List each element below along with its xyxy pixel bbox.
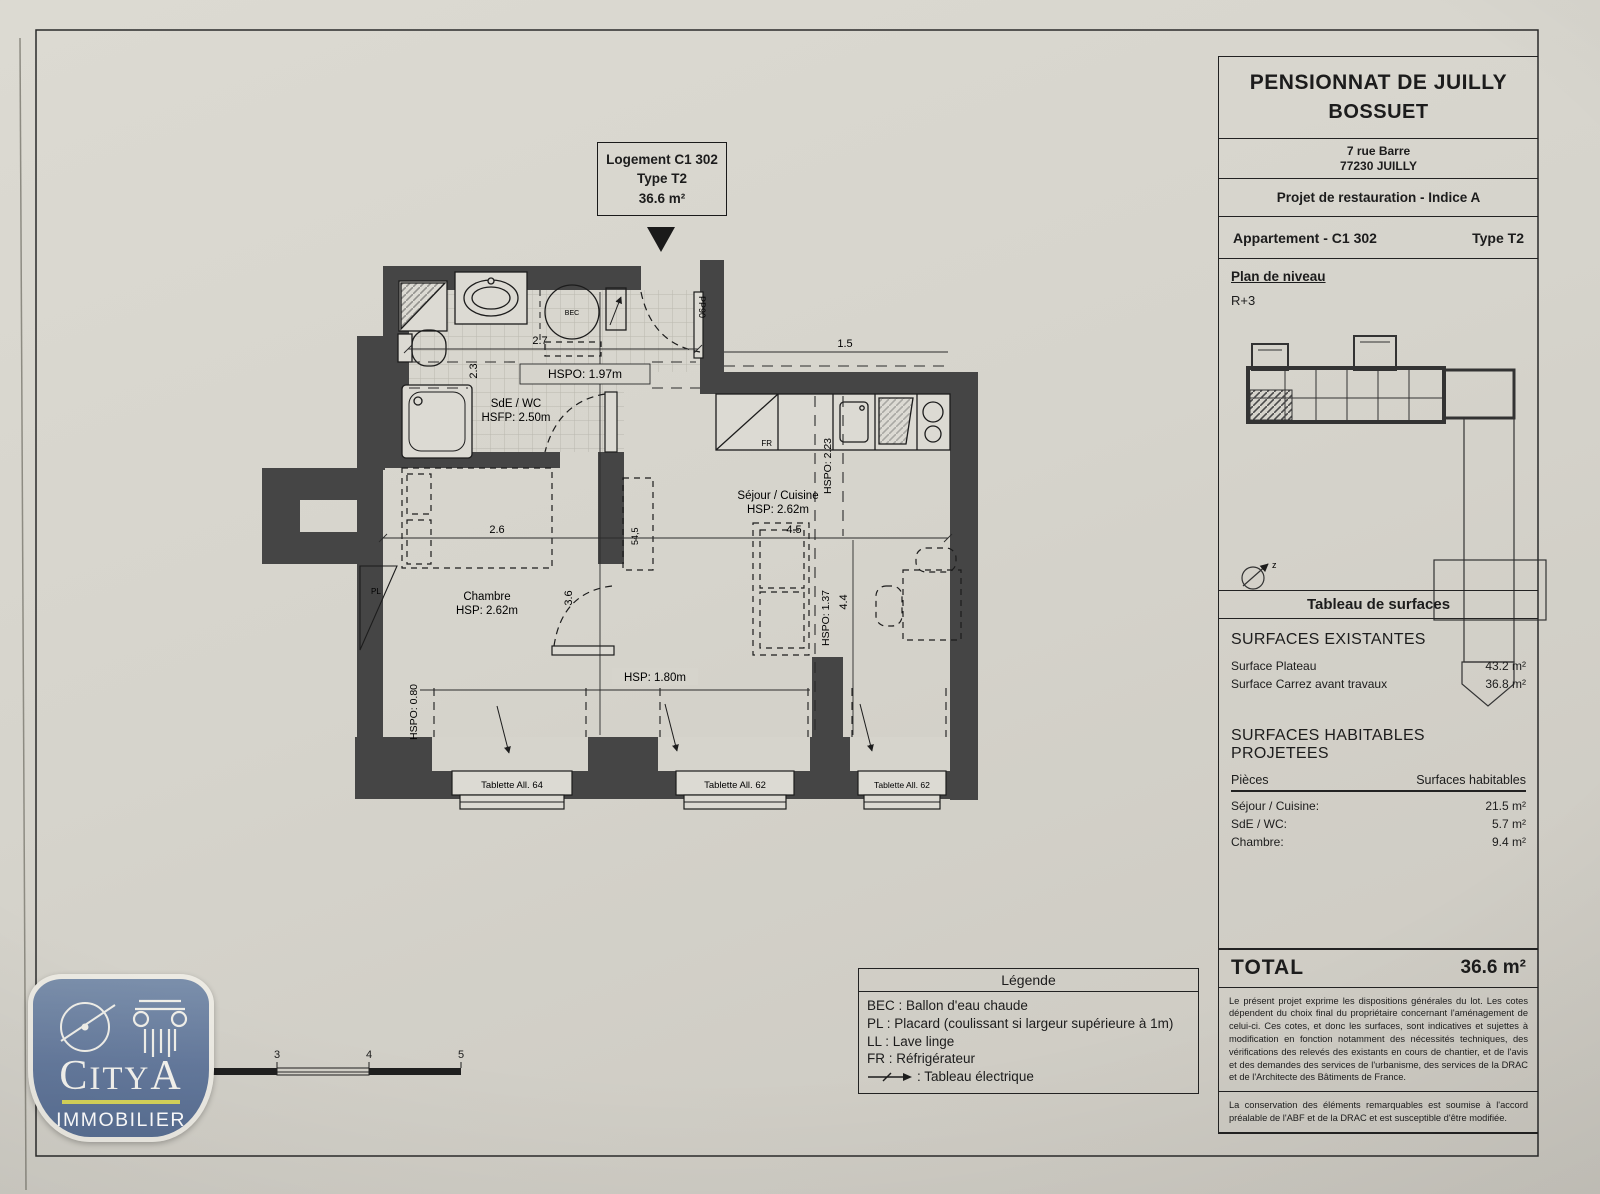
surfaces-table: SURFACES EXISTANTES Surface Plateau 43.2… <box>1219 619 1538 949</box>
note-1: Le présent projet exprime les dispositio… <box>1219 988 1538 1093</box>
fridge-label: FR <box>761 439 772 448</box>
legend-title: Légende <box>859 969 1198 992</box>
unit-type: Type T2 <box>598 169 726 189</box>
projected-surfaces-header: SURFACES HABITABLES PROJETEES <box>1231 727 1526 763</box>
pillow <box>407 474 431 514</box>
window-sill-label: Tablette All. 64 <box>481 780 543 791</box>
unit-area: 36.6 m² <box>598 189 726 209</box>
legend-box: Légende BEC : Ballon d'eau chaude PL : P… <box>858 968 1199 1094</box>
svg-text:3: 3 <box>274 1049 280 1061</box>
svg-text:4: 4 <box>366 1049 372 1061</box>
project-title: PENSIONNAT DE JUILLY BOSSUET <box>1219 57 1538 139</box>
logo-icons <box>41 979 201 1057</box>
svg-text:1.5: 1.5 <box>837 338 852 350</box>
surfaces-table-header: Tableau de surfaces <box>1219 591 1538 619</box>
table-row: Séjour / Cuisine: 21.5 m² <box>1231 799 1526 813</box>
svg-text:4.5: 4.5 <box>786 524 801 536</box>
level-value: R+3 <box>1231 293 1526 308</box>
unit-id: Logement C1 302 <box>598 150 726 170</box>
apartment-id: Appartement - C1 302 <box>1233 230 1377 246</box>
note-2: La conservation des éléments remarquable… <box>1219 1092 1538 1133</box>
bedroom-door-leaf <box>552 646 614 655</box>
wc-cistern <box>398 334 412 362</box>
total-label: TOTAL <box>1231 956 1304 980</box>
svg-text:2.6: 2.6 <box>489 524 504 536</box>
sofa <box>753 523 809 655</box>
svg-text:HSPO: 0.80: HSPO: 0.80 <box>408 684 420 740</box>
column-icon <box>134 1001 186 1057</box>
svg-text:HSFP: 2.50m: HSFP: 2.50m <box>481 412 550 424</box>
svg-text:HSPO: 1.37: HSPO: 1.37 <box>820 590 832 646</box>
window-sill-label: Tablette All. 62 <box>704 780 766 791</box>
room-sde: SdE / WC <box>491 398 541 410</box>
level-label: Plan de niveau <box>1231 269 1526 284</box>
tiled-floor-entry <box>409 290 700 372</box>
bed <box>402 468 552 568</box>
logo-subtitle: IMMOBILIER <box>56 1109 186 1132</box>
table-row: Chambre: 9.4 m² <box>1231 835 1526 849</box>
wardrobe-label: PL <box>371 587 381 596</box>
legend-item-electric: : Tableau électrique <box>867 1068 1190 1086</box>
room-chambre: Chambre <box>463 591 510 603</box>
apartment-row: Appartement - C1 302 Type T2 <box>1219 217 1538 259</box>
citya-logo: CITYA IMMOBILIER <box>28 974 214 1142</box>
windows: Tablette All. 64 Tablette All. 62 Tablet… <box>432 688 950 809</box>
table-column-headers: Pièces Surfaces habitables <box>1231 773 1526 792</box>
apartment-type: Type T2 <box>1472 230 1524 246</box>
table-row: Surface Carrez avant travaux 36.8 m² <box>1231 677 1526 691</box>
title-block: PENSIONNAT DE JUILLY BOSSUET 7 rue Barre… <box>1218 56 1538 1134</box>
pointer-triangle-icon <box>647 227 675 252</box>
svg-text:HSPO: 2.23: HSPO: 2.23 <box>822 438 834 494</box>
apartment-plan: Tablette All. 64 Tablette All. 62 Tablet… <box>262 260 978 809</box>
drawing-sheet: Tablette All. 64 Tablette All. 62 Tablet… <box>0 0 1600 1194</box>
svg-text:5: 5 <box>458 1049 464 1061</box>
level-section: Plan de niveau R+3 <box>1219 259 1538 591</box>
closet-54 <box>623 478 653 570</box>
svg-text:3.6: 3.6 <box>563 590 575 605</box>
window-sill-label: Tablette All. 62 <box>874 780 930 790</box>
table-row: SdE / WC: 5.7 m² <box>1231 817 1526 831</box>
svg-text:HSP: 2.62m: HSP: 2.62m <box>747 504 809 516</box>
svg-text:HSPO: 1.97m: HSPO: 1.97m <box>548 367 622 381</box>
svg-text:HSP: 2.62m: HSP: 2.62m <box>456 605 518 617</box>
bathroom-door-leaf <box>605 392 617 452</box>
legend-item: FR : Réfrigérateur <box>867 1050 1190 1068</box>
pillow <box>407 520 431 564</box>
project-name: Projet de restauration - Indice A <box>1219 179 1538 217</box>
total-value: 36.6 m² <box>1461 957 1526 979</box>
room-sejour: Séjour / Cuisine <box>737 490 818 502</box>
svg-text:2.7: 2.7 <box>532 335 547 347</box>
logo-underline <box>62 1100 180 1104</box>
water-heater-label: BEC <box>565 310 579 317</box>
total-row: TOTAL 36.6 m² <box>1219 948 1538 988</box>
logo-wordmark: CITYA <box>59 1055 182 1097</box>
project-address: 7 rue Barre 77230 JUILLY <box>1219 139 1538 179</box>
closet-dim: 54,5 <box>630 527 640 545</box>
entry-door-label: PP90 <box>697 296 707 318</box>
legend-item: LL : Lave linge <box>867 1033 1190 1051</box>
chair <box>876 586 902 626</box>
furniture <box>402 468 961 655</box>
svg-text:2.3: 2.3 <box>468 363 480 378</box>
legend-item: PL : Placard (coulissant si largeur supé… <box>867 1015 1190 1033</box>
electric-arrow-icon <box>867 1071 913 1083</box>
table-row: Surface Plateau 43.2 m² <box>1231 659 1526 673</box>
existing-surfaces-header: SURFACES EXISTANTES <box>1231 631 1526 649</box>
svg-text:4.4: 4.4 <box>838 594 850 609</box>
svg-text:HSP: 1.80m: HSP: 1.80m <box>624 672 686 684</box>
legend-item: BEC : Ballon d'eau chaude <box>867 997 1190 1015</box>
unit-label-box: Logement C1 302 Type T2 36.6 m² <box>597 142 727 216</box>
